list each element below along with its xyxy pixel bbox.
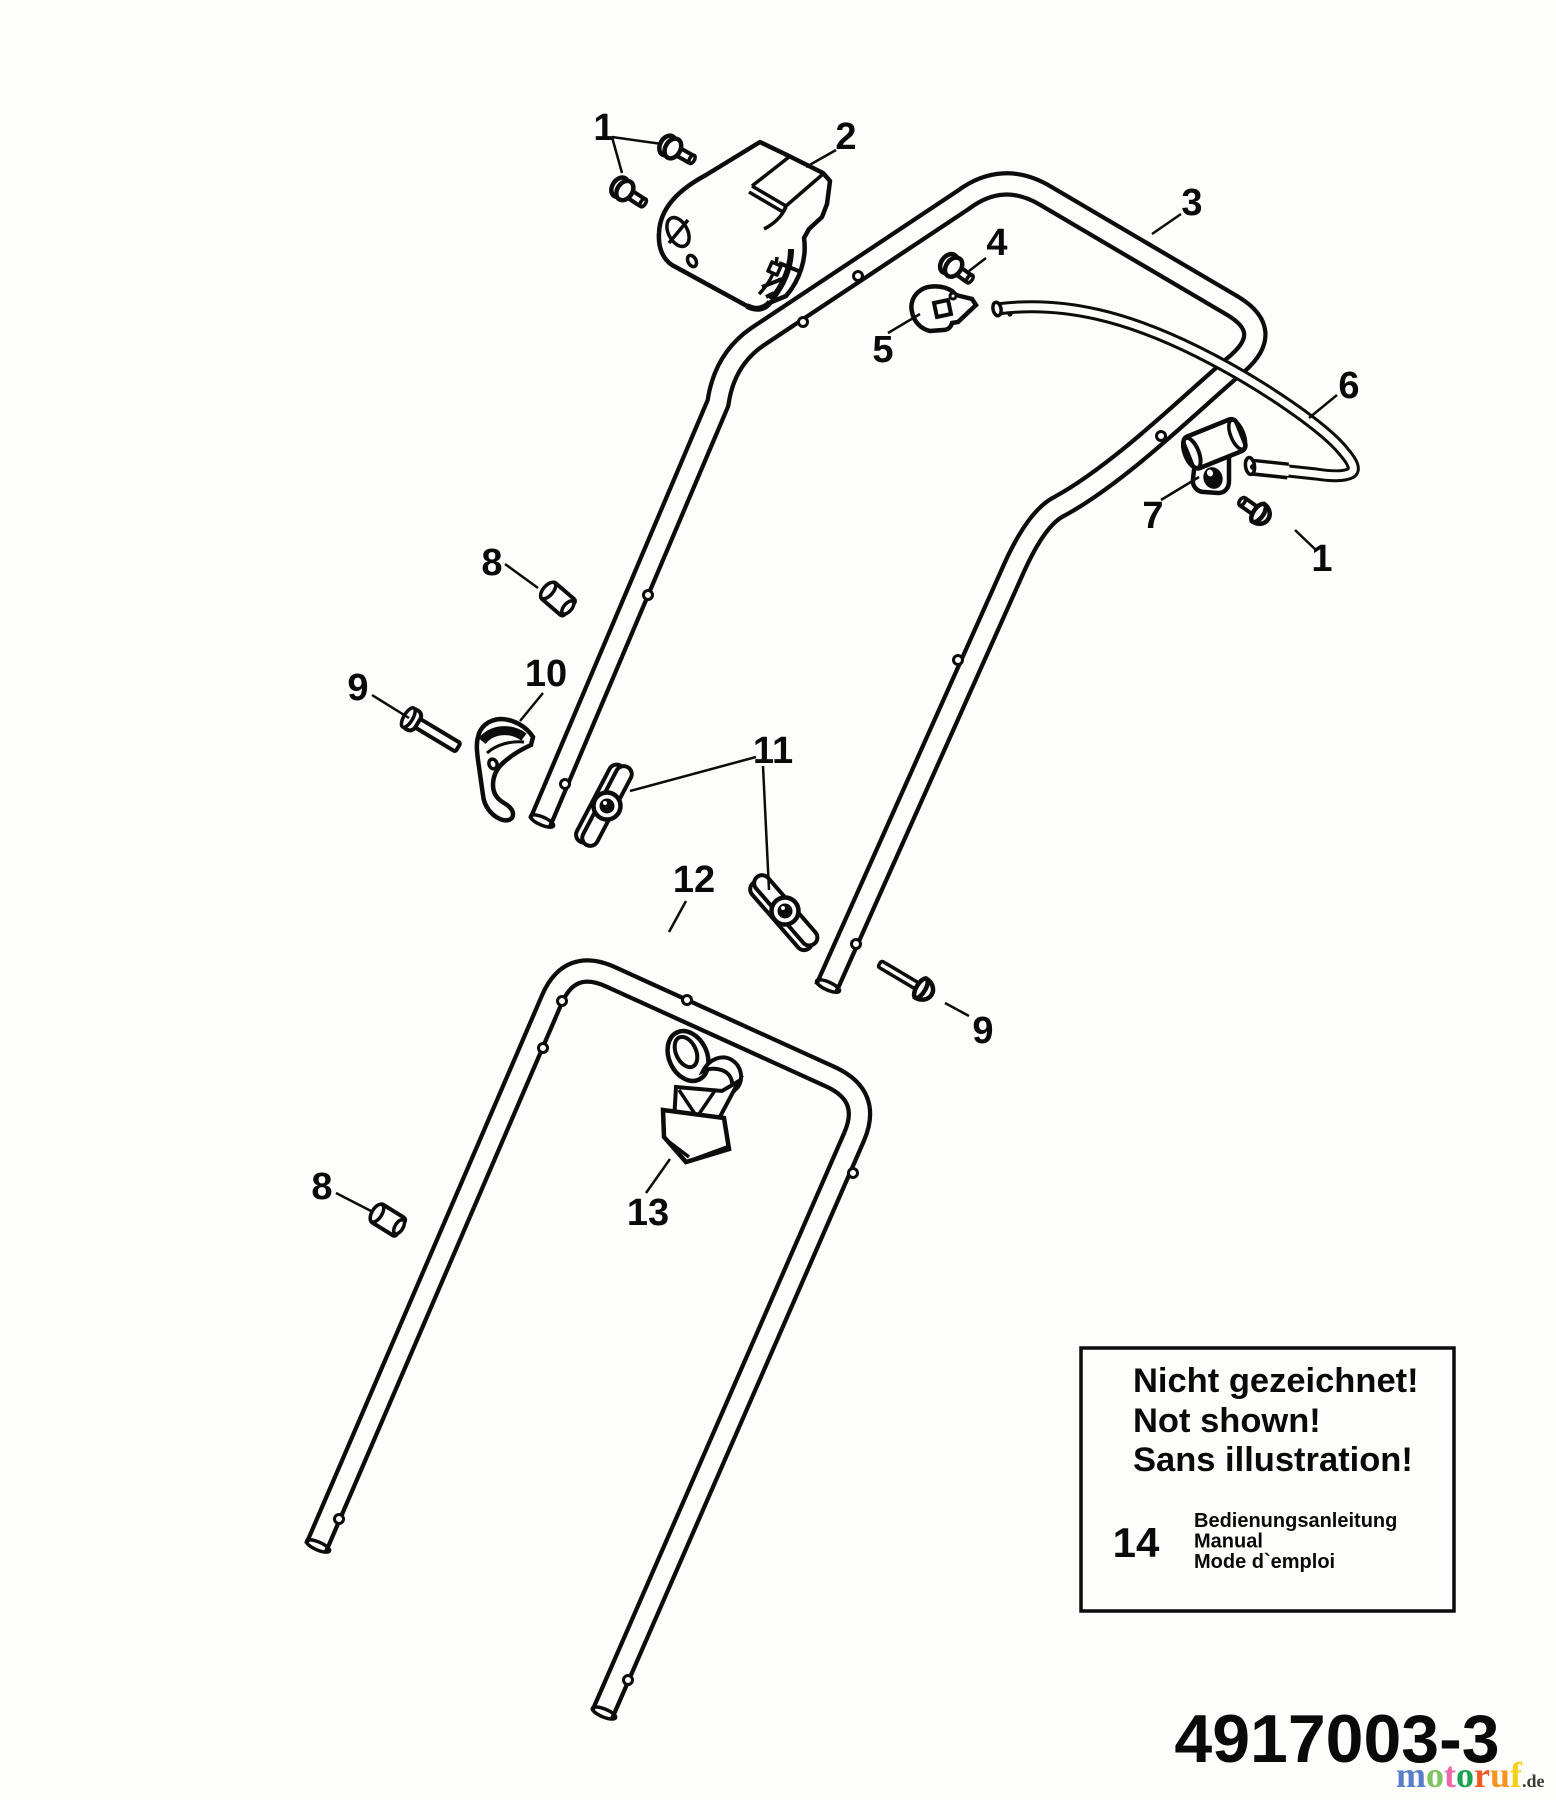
svg-text:8: 8 [481, 542, 502, 584]
svg-text:Sans illustration!: Sans illustration! [1133, 1441, 1413, 1479]
svg-text:12: 12 [673, 859, 715, 901]
svg-text:13: 13 [627, 1192, 669, 1234]
svg-text:9: 9 [972, 1010, 993, 1052]
svg-text:8: 8 [311, 1166, 332, 1208]
svg-text:9: 9 [347, 667, 368, 709]
svg-text:Manual: Manual [1194, 1531, 1263, 1553]
svg-text:Mode d`emploi: Mode d`emploi [1194, 1551, 1335, 1573]
svg-text:14: 14 [1113, 1519, 1160, 1566]
svg-text:11: 11 [753, 730, 793, 772]
svg-text:Bedienungsanleitung: Bedienungsanleitung [1194, 1510, 1397, 1532]
svg-text:3: 3 [1181, 182, 1202, 224]
svg-text:1: 1 [1311, 538, 1332, 580]
svg-text:7: 7 [1142, 495, 1163, 537]
svg-text:Nicht gezeichnet!: Nicht gezeichnet! [1133, 1362, 1419, 1400]
svg-text:10: 10 [525, 653, 567, 695]
svg-text:6: 6 [1338, 365, 1359, 407]
svg-text:5: 5 [872, 329, 893, 371]
svg-text:2: 2 [835, 116, 856, 158]
svg-text:4: 4 [986, 222, 1007, 264]
svg-text:Not shown!: Not shown! [1133, 1402, 1321, 1440]
svg-text:1: 1 [593, 107, 614, 149]
